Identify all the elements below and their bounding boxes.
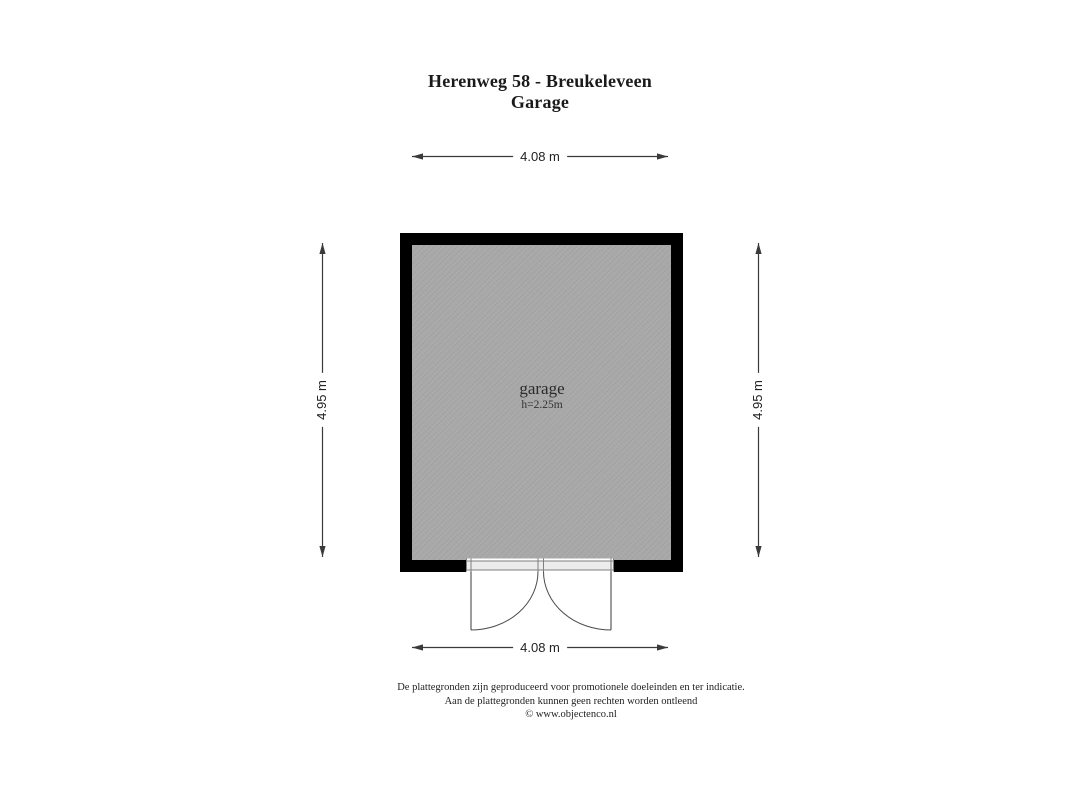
dimension-label-left: 4.95 m — [314, 373, 330, 427]
room-name: garage — [519, 380, 564, 398]
disclaimer: De plattegronden zijn geproduceerd voor … — [397, 681, 745, 722]
dimension-label-right: 4.95 m — [750, 373, 766, 427]
disclaimer-line2: Aan de plattegronden kunnen geen rechten… — [397, 695, 745, 709]
page-title-line1: Herenweg 58 - Breukeleveen — [0, 71, 1080, 92]
page-title-line2: Garage — [0, 92, 1080, 113]
page-title: Herenweg 58 - Breukeleveen Garage — [0, 71, 1080, 113]
dimension-label-bottom: 4.08 m — [513, 640, 567, 656]
disclaimer-copyright: © www.objectenco.nl — [397, 708, 745, 722]
room-ceiling-height: h=2.25m — [519, 399, 564, 412]
disclaimer-line1: De plattegronden zijn geproduceerd voor … — [397, 681, 745, 695]
dimension-label-top: 4.08 m — [513, 149, 567, 165]
floorplan-page: Herenweg 58 - Breukeleveen Garage — [0, 0, 1080, 800]
room-label: garage h=2.25m — [519, 380, 564, 412]
